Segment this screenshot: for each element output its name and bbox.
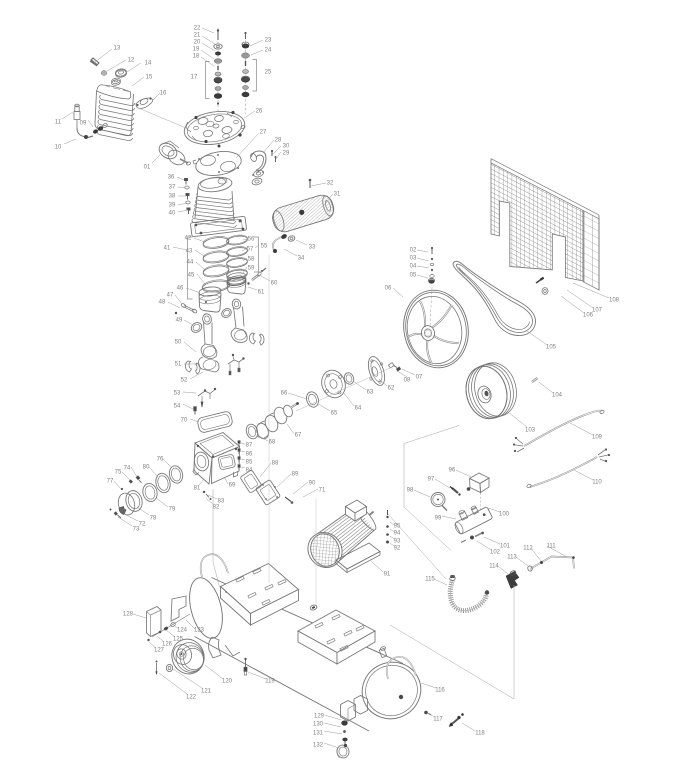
svg-text:42: 42 [185, 235, 192, 241]
svg-text:71: 71 [319, 487, 326, 493]
svg-text:30: 30 [283, 143, 290, 149]
svg-text:03: 03 [410, 255, 417, 261]
svg-text:116: 116 [435, 687, 445, 693]
svg-text:92: 92 [394, 545, 401, 551]
svg-text:25: 25 [265, 69, 272, 75]
svg-text:75: 75 [115, 469, 122, 475]
svg-text:14: 14 [145, 60, 152, 66]
svg-text:91: 91 [384, 571, 391, 577]
svg-text:45: 45 [188, 272, 195, 278]
svg-text:78: 78 [150, 515, 157, 521]
svg-text:57: 57 [247, 246, 254, 252]
svg-text:127: 127 [154, 647, 165, 653]
svg-text:89: 89 [292, 471, 299, 477]
svg-text:12: 12 [128, 57, 135, 63]
svg-text:86: 86 [246, 451, 253, 457]
svg-text:65: 65 [331, 410, 338, 416]
svg-text:43: 43 [186, 248, 193, 254]
svg-text:82: 82 [213, 504, 220, 510]
svg-text:62: 62 [388, 385, 395, 391]
svg-text:54: 54 [174, 403, 181, 409]
svg-text:10: 10 [55, 144, 62, 150]
svg-text:02: 02 [410, 247, 417, 253]
svg-text:77: 77 [107, 478, 114, 484]
svg-text:129: 129 [314, 713, 325, 719]
svg-text:41: 41 [164, 245, 171, 251]
svg-text:94: 94 [394, 530, 401, 536]
svg-text:117: 117 [433, 716, 443, 722]
svg-text:34: 34 [298, 255, 305, 261]
svg-text:33: 33 [309, 244, 316, 250]
svg-text:04: 04 [410, 263, 417, 269]
svg-text:58: 58 [248, 256, 255, 262]
svg-text:103: 103 [525, 427, 536, 433]
svg-text:29: 29 [283, 150, 290, 156]
svg-text:76: 76 [157, 456, 164, 462]
svg-text:01: 01 [144, 164, 151, 170]
svg-text:13: 13 [114, 45, 121, 51]
svg-text:101: 101 [500, 543, 511, 549]
svg-text:52: 52 [181, 377, 188, 383]
svg-text:124: 124 [177, 627, 188, 633]
svg-text:107: 107 [592, 307, 603, 313]
svg-text:98: 98 [407, 487, 414, 493]
svg-text:96: 96 [449, 467, 456, 473]
svg-text:64: 64 [355, 405, 362, 411]
svg-text:105: 105 [546, 344, 557, 350]
svg-text:68: 68 [269, 439, 276, 445]
svg-text:110: 110 [592, 479, 602, 485]
svg-text:05: 05 [410, 272, 417, 278]
svg-text:39: 39 [169, 202, 176, 208]
svg-text:28: 28 [275, 137, 282, 143]
svg-text:121: 121 [201, 688, 212, 694]
svg-text:07: 07 [416, 374, 423, 380]
svg-text:113: 113 [507, 554, 517, 560]
svg-text:70: 70 [181, 417, 188, 423]
svg-text:27: 27 [260, 129, 267, 135]
svg-text:80: 80 [143, 464, 150, 470]
svg-text:49: 49 [176, 317, 183, 323]
svg-text:23: 23 [265, 37, 272, 43]
svg-text:106: 106 [583, 312, 594, 318]
svg-text:26: 26 [256, 108, 263, 114]
svg-text:93: 93 [394, 538, 401, 544]
svg-text:118: 118 [475, 730, 485, 736]
svg-text:53: 53 [174, 390, 181, 396]
svg-text:51: 51 [175, 361, 182, 367]
svg-text:95: 95 [394, 523, 401, 529]
svg-text:36: 36 [168, 174, 175, 180]
svg-text:109: 109 [592, 434, 603, 440]
svg-text:114: 114 [489, 563, 499, 569]
svg-text:22: 22 [194, 25, 201, 31]
svg-text:50: 50 [175, 339, 182, 345]
svg-text:16: 16 [160, 90, 167, 96]
svg-text:32: 32 [327, 180, 334, 186]
svg-text:47: 47 [167, 292, 174, 298]
svg-text:60: 60 [271, 280, 278, 286]
svg-text:66: 66 [281, 390, 288, 396]
svg-text:40: 40 [169, 210, 176, 216]
svg-text:61: 61 [258, 289, 265, 295]
svg-text:73: 73 [133, 526, 140, 532]
svg-text:09: 09 [80, 120, 87, 126]
svg-text:44: 44 [187, 259, 194, 265]
svg-text:18: 18 [193, 53, 200, 59]
svg-text:06: 06 [385, 285, 392, 291]
svg-text:131: 131 [313, 730, 324, 736]
svg-text:79: 79 [169, 506, 176, 512]
svg-text:48: 48 [159, 299, 166, 305]
svg-text:88: 88 [272, 460, 279, 466]
svg-text:115: 115 [425, 576, 435, 582]
svg-text:81: 81 [194, 485, 201, 491]
svg-text:119: 119 [265, 678, 275, 684]
svg-text:19: 19 [193, 46, 200, 52]
svg-text:31: 31 [334, 191, 341, 197]
svg-text:08: 08 [404, 377, 411, 383]
svg-text:128: 128 [123, 611, 134, 617]
svg-text:99: 99 [435, 515, 442, 521]
svg-text:37: 37 [169, 184, 176, 190]
svg-text:24: 24 [265, 47, 272, 53]
svg-text:72: 72 [139, 521, 146, 527]
svg-text:125: 125 [173, 636, 184, 642]
svg-text:55: 55 [261, 243, 268, 249]
svg-text:11: 11 [55, 119, 62, 125]
svg-text:85: 85 [246, 459, 253, 465]
svg-text:112: 112 [523, 545, 533, 551]
svg-text:84: 84 [246, 467, 253, 473]
svg-text:123: 123 [194, 627, 205, 633]
svg-text:17: 17 [191, 74, 198, 80]
svg-text:87: 87 [246, 442, 253, 448]
svg-text:56: 56 [248, 236, 255, 242]
svg-text:130: 130 [313, 721, 324, 727]
svg-text:20: 20 [194, 39, 201, 45]
svg-text:38: 38 [169, 193, 176, 199]
svg-text:120: 120 [222, 678, 233, 684]
svg-text:90: 90 [309, 480, 316, 486]
svg-text:67: 67 [295, 432, 302, 438]
svg-text:108: 108 [609, 297, 620, 303]
svg-text:100: 100 [499, 511, 510, 517]
svg-text:122: 122 [186, 694, 197, 700]
svg-text:104: 104 [552, 392, 563, 398]
svg-text:132: 132 [313, 742, 324, 748]
svg-text:46: 46 [177, 285, 184, 291]
svg-text:74: 74 [124, 465, 131, 471]
svg-text:15: 15 [146, 74, 153, 80]
svg-text:69: 69 [229, 482, 236, 488]
svg-text:63: 63 [367, 389, 374, 395]
svg-text:102: 102 [490, 549, 501, 555]
svg-text:59: 59 [248, 265, 255, 271]
svg-text:97: 97 [428, 476, 435, 482]
svg-text:21: 21 [194, 32, 201, 38]
